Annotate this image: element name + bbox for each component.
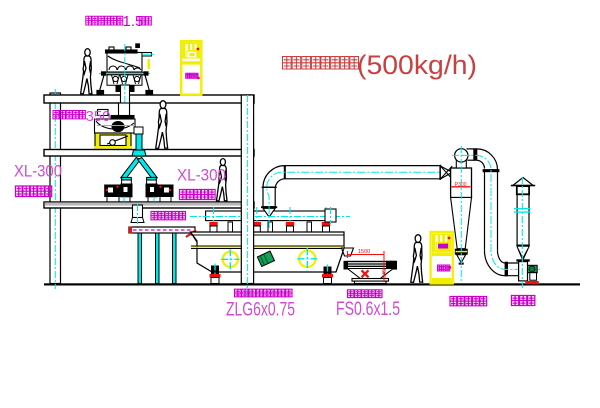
svg-text:XL-300: XL-300 bbox=[14, 162, 62, 181]
svg-text:350: 350 bbox=[86, 108, 111, 125]
svg-text:XL-300: XL-300 bbox=[177, 166, 226, 185]
svg-text:945: 945 bbox=[382, 269, 388, 278]
svg-text:ZLG6x0.75: ZLG6x0.75 bbox=[226, 300, 295, 321]
svg-text:(500kg/h): (500kg/h) bbox=[357, 50, 477, 80]
svg-text:FS0.6x1.5: FS0.6x1.5 bbox=[336, 299, 400, 320]
svg-text:P300: P300 bbox=[455, 182, 467, 188]
svg-text:1500: 1500 bbox=[358, 249, 370, 255]
